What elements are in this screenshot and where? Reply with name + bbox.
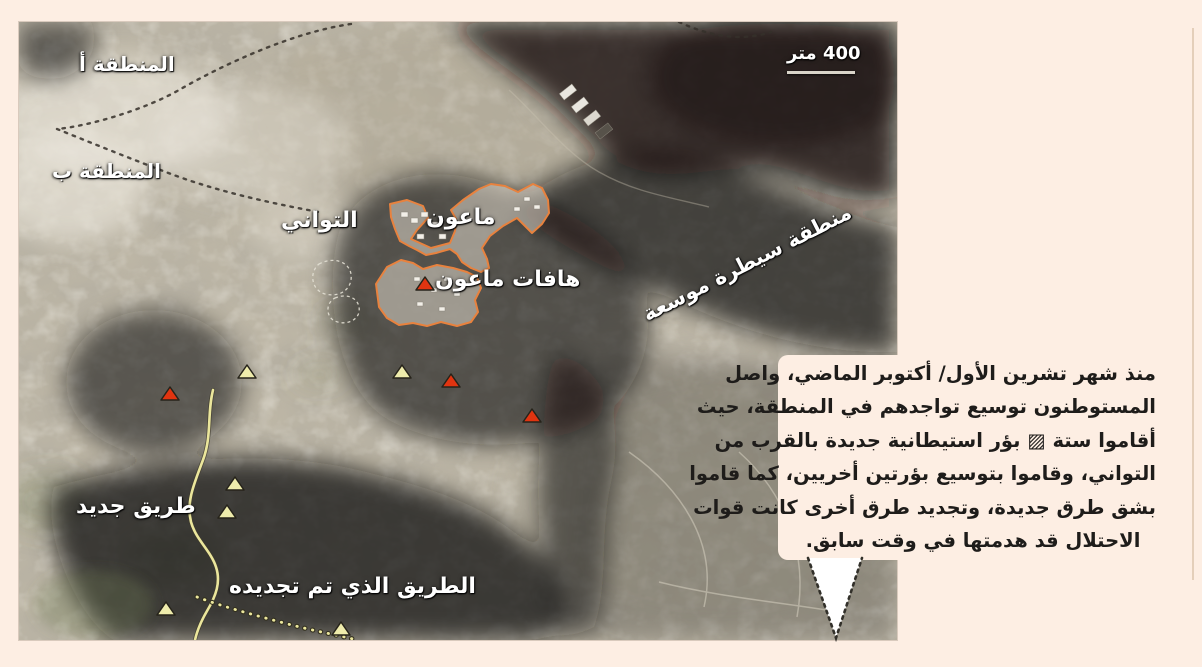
callout-text-line: المستوطنون توسيع تواجدهم في المنطقة، حيث [790,390,1156,423]
callout-box: منذ شهر تشرين الأول/ أكتوبر الماضي، واصل… [778,355,1168,560]
satellite-map: المنطقة أ المنطقة ب التواني ماعون هافات … [19,22,897,640]
scale-label: 400 متر [787,43,861,64]
callout-text-line: أقاموا ستة ▨ بؤر استيطانية جديدة بالقرب … [790,424,1156,457]
callout-tail [798,554,878,644]
map-label-area-a: المنطقة أ [79,52,175,76]
callout-text-line: منذ شهر تشرين الأول/ أكتوبر الماضي، واصل [790,357,1156,390]
callout-text-line: بشق طرق جديدة، وتجديد طرق أخرى كانت قوات [790,491,1156,524]
map-artwork [19,22,897,640]
infographic-page: { "scalebar": { "label": "400 متر" }, "m… [0,0,1202,667]
map-label-new-road: طريق جديد [76,494,196,519]
map-label-renewed-road: الطريق الذي تم تجديده [229,574,476,599]
map-label-havat-maon: هافات ماعون [435,267,580,292]
callout-text-line: الاحتلال قد هدمتها في وقت سابق. [790,524,1156,557]
map-label-tuwani: التواني [281,208,358,233]
green-fields-patch [34,570,154,638]
scale-bar [787,71,855,74]
page-edge-line [1192,28,1194,580]
map-label-area-b: المنطقة ب [52,159,161,183]
map-label-maon: ماعون [426,205,495,230]
callout-text-line: التواني، وقاموا بتوسيع بؤرتين أخريين، كم… [790,457,1156,490]
